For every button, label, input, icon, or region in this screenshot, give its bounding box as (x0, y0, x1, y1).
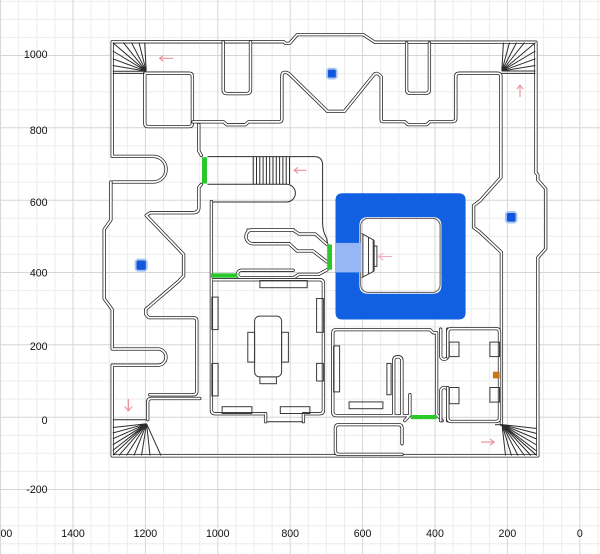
svg-text:600: 600 (30, 197, 48, 209)
svg-text:0: 0 (577, 528, 583, 540)
svg-text:1000: 1000 (24, 49, 48, 61)
svg-text:600: 600 (354, 528, 372, 540)
svg-text:-200: -200 (26, 484, 47, 496)
svg-text:400: 400 (426, 528, 444, 540)
svg-text:200: 200 (499, 528, 517, 540)
svg-text:800: 800 (30, 125, 48, 137)
svg-text:1400: 1400 (61, 528, 85, 540)
svg-text:1000: 1000 (206, 528, 230, 540)
svg-text:00: 00 (1, 528, 13, 540)
svg-text:0: 0 (42, 415, 48, 427)
svg-text:200: 200 (30, 341, 48, 353)
svg-text:1200: 1200 (134, 528, 158, 540)
svg-text:400: 400 (30, 267, 48, 279)
svg-text:800: 800 (281, 528, 299, 540)
